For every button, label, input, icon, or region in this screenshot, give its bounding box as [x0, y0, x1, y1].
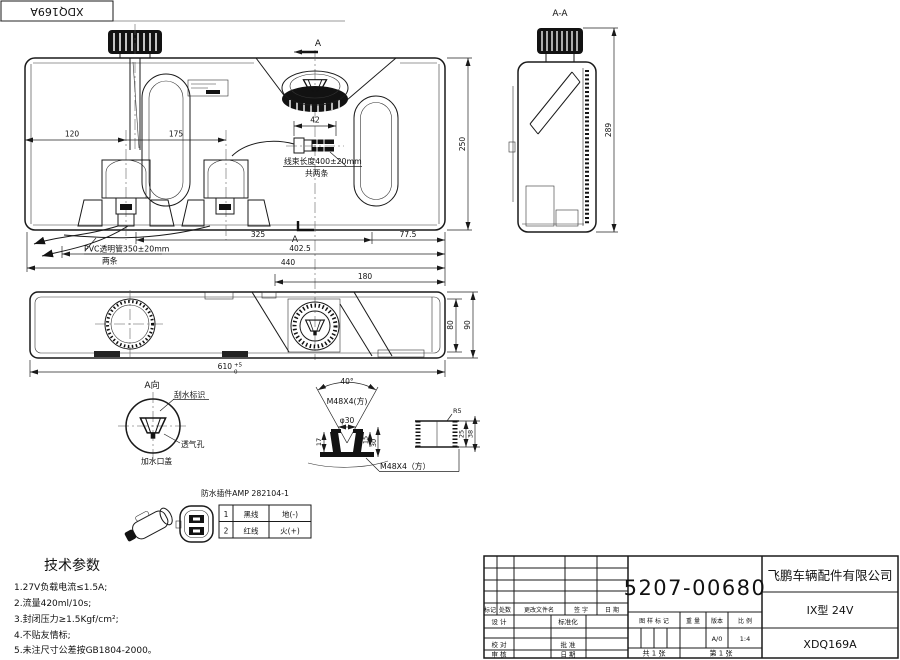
svg-text:325: 325 [251, 230, 266, 239]
wiring-table: 1 黑线 地(-) 2 红线 火(+) [219, 505, 311, 538]
section-mark-bottom: A [292, 221, 314, 245]
svg-text:0: 0 [234, 370, 238, 376]
svg-text:刮水标识: 刮水标识 [174, 390, 205, 400]
tech-params-title: 技术参数 [44, 557, 100, 574]
connector-detail: 防水插件AMP 282104-1 1 黑线 地(-) 2 红线 火(+) [120, 488, 311, 546]
svg-text:40°: 40° [340, 377, 354, 386]
svg-text:校 对: 校 对 [491, 640, 507, 649]
svg-text:两条: 两条 [102, 256, 118, 266]
dim-80-90: 80 90 [446, 292, 478, 358]
section-mark-top: A [294, 39, 322, 52]
tech-param-2: 2.流量420ml/10s; [14, 597, 91, 609]
tank-outline [25, 58, 445, 230]
neck-section [308, 429, 388, 467]
company-name: 飞鹏车辆配件有限公司 [767, 568, 892, 583]
section-body [518, 62, 596, 232]
svg-text:R5: R5 [453, 407, 462, 415]
svg-text:更改文件名: 更改文件名 [524, 606, 554, 614]
section-cap [537, 28, 583, 62]
svg-text:线束长度400±20mm: 线束长度400±20mm [284, 156, 362, 166]
version-value: A/0 [712, 635, 723, 643]
dims-bottom: 325 77.5 402.5 440 180 [27, 230, 445, 286]
svg-text:M48X4（方）: M48X4（方） [380, 461, 430, 471]
svg-text:PVC透明管350±20mm: PVC透明管350±20mm [84, 244, 169, 254]
svg-text:标记: 标记 [484, 606, 496, 614]
svg-text:红线: 红线 [244, 526, 259, 536]
svg-text:共两条: 共两条 [305, 168, 329, 178]
svg-text:共 1 张: 共 1 张 [643, 649, 666, 658]
dim-250: 250 [447, 58, 472, 230]
corner-part-number: XDQ169A [30, 5, 84, 18]
pvc-note: PVC透明管350±20mm 两条 [84, 238, 169, 266]
filler-cap-label: 加水口盖 [141, 456, 172, 466]
svg-text:处数: 处数 [499, 606, 511, 614]
svg-text:φ30: φ30 [340, 416, 355, 425]
part-number: 5207-00680 [624, 576, 767, 600]
tech-param-4: 4.不贴友情标; [14, 629, 71, 641]
signature-area: 设 计 标准化 校 对 批 准 审 核 日 期 [484, 615, 628, 659]
connector-front [176, 506, 213, 542]
svg-text:610: 610 [218, 362, 233, 371]
tech-param-1: 1.27V负载电流≤1.5A; [14, 581, 107, 593]
svg-text:250: 250 [458, 137, 467, 152]
svg-text:15: 15 [362, 436, 370, 444]
svg-text:17: 17 [315, 438, 323, 446]
svg-text:火(+): 火(+) [280, 527, 300, 536]
svg-text:120: 120 [65, 130, 80, 139]
svg-text:比 例: 比 例 [738, 617, 752, 625]
plan-view: 80 90 610 +5 0 A向 [30, 290, 478, 391]
drawing-number: XDQ169A [803, 638, 857, 651]
thread-detail: 40° M48X4(方) φ30 17 15 30 M48X4（方） [308, 377, 459, 472]
svg-text:77.5: 77.5 [400, 230, 417, 239]
front-view: 42 线束长度400±20mm 共两条 120 175 250 A A PVC透… [25, 24, 472, 360]
section-title: A-A [552, 9, 568, 19]
wiper-mark-label: 刮水标识 [160, 390, 209, 412]
dim-610: 610 +5 0 [30, 360, 445, 377]
scale-value: 1:4 [740, 635, 750, 643]
cap-section-detail: R5 25 38 [415, 407, 480, 452]
svg-text:175: 175 [169, 130, 184, 139]
detail-a-view: 刮水标识 透气孔 加水口盖 [118, 390, 209, 467]
svg-text:1: 1 [224, 510, 229, 519]
svg-text:标准化: 标准化 [558, 617, 578, 626]
svg-text:80: 80 [446, 320, 455, 330]
svg-text:30: 30 [370, 439, 378, 447]
harness-connector [294, 138, 334, 153]
drawing-canvas: XDQ169A [0, 0, 900, 660]
corner-label-box: XDQ169A [0, 1, 345, 21]
svg-text:图 样 标 记: 图 样 标 记 [639, 617, 669, 625]
engineering-drawing-sheet: XDQ169A [0, 0, 900, 660]
revision-table: 标记 处数 更改文件名 签 字 日 期 [484, 556, 628, 615]
section-view-aa: A-A 289 [509, 9, 618, 232]
model-name: IX型 24V [807, 603, 854, 617]
svg-text:黑线: 黑线 [244, 509, 259, 519]
svg-text:重 量: 重 量 [686, 617, 700, 625]
svg-text:+5: +5 [234, 363, 243, 369]
tech-params: 技术参数 1.27V负载电流≤1.5A; 2.流量420ml/10s; 3.封闭… [14, 557, 157, 656]
svg-text:2: 2 [224, 527, 229, 536]
svg-text:440: 440 [281, 258, 296, 267]
svg-text:版本: 版本 [711, 617, 723, 625]
thread-bottom-label: M48X4（方） [366, 449, 459, 472]
svg-text:透气孔: 透气孔 [181, 439, 205, 449]
svg-text:402.5: 402.5 [289, 244, 311, 253]
view-direction-label: A向 [144, 379, 159, 391]
svg-text:审 核: 审 核 [491, 650, 507, 659]
svg-text:90: 90 [463, 320, 472, 330]
svg-text:25: 25 [458, 430, 466, 438]
tech-param-3: 3.封闭压力≥1.5Kgf/cm²; [14, 613, 119, 625]
cap-detail-dims: R5 25 38 [447, 407, 480, 452]
svg-text:第 1 张: 第 1 张 [710, 649, 733, 658]
svg-text:批 准: 批 准 [560, 640, 576, 649]
dim-120-175: 120 175 [25, 130, 226, 141]
svg-text:日 期: 日 期 [605, 606, 619, 614]
svg-text:日 期: 日 期 [560, 651, 576, 659]
svg-text:M48X4(方): M48X4(方) [327, 396, 368, 406]
harness-note: 线束长度400±20mm 共两条 [283, 152, 362, 178]
svg-text:38: 38 [467, 430, 475, 438]
svg-text:289: 289 [604, 123, 613, 138]
svg-text:签 字: 签 字 [574, 606, 588, 614]
tech-param-5: 5.未注尺寸公差按GB1804-2000。 [14, 644, 157, 656]
svg-text:设 计: 设 计 [491, 617, 507, 626]
connector-title: 防水插件AMP 282104-1 [201, 488, 289, 498]
spec-sticker [188, 80, 228, 96]
title-block: 标记 处数 更改文件名 签 字 日 期 设 计 标准化 校 对 批 准 审 核 … [484, 556, 898, 659]
svg-text:180: 180 [358, 272, 373, 281]
company-area: 飞鹏车辆配件有限公司 IX型 24V XDQ169A [762, 568, 898, 651]
svg-text:A: A [315, 39, 322, 49]
svg-text:42: 42 [310, 116, 320, 125]
filler-cap-front [256, 58, 396, 112]
connector-3d [120, 502, 175, 546]
svg-text:地(-): 地(-) [282, 509, 298, 519]
part-number-area: 5207-00680 图 样 标 记 重 量 版本 比 例 A/0 1:4 共 … [624, 576, 767, 658]
